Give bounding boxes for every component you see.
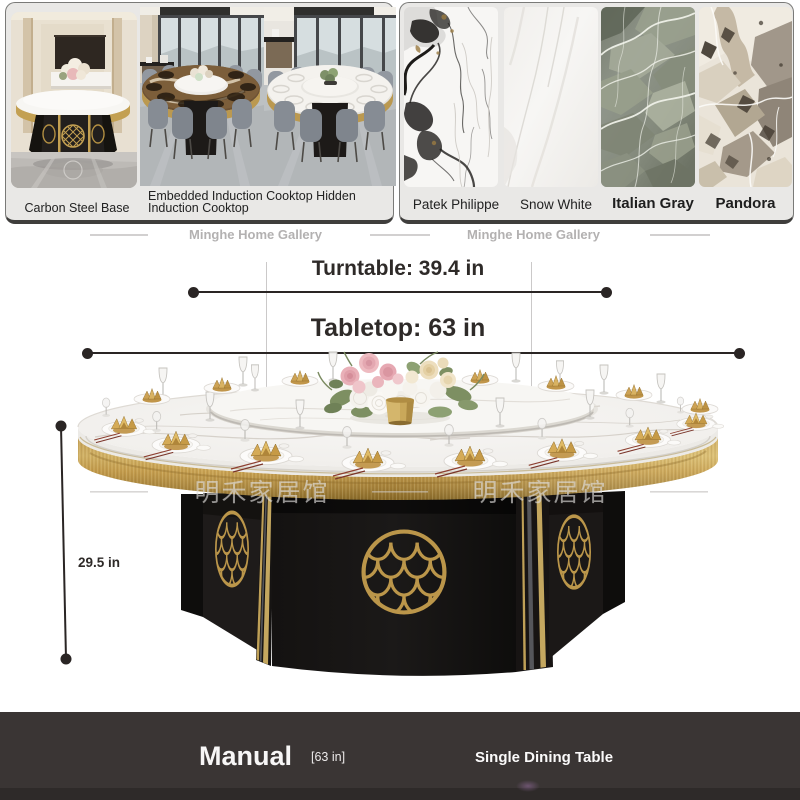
svg-text:明禾家居馆: 明禾家居馆 <box>472 479 607 507</box>
svg-text:明禾家居馆: 明禾家居馆 <box>194 479 329 507</box>
